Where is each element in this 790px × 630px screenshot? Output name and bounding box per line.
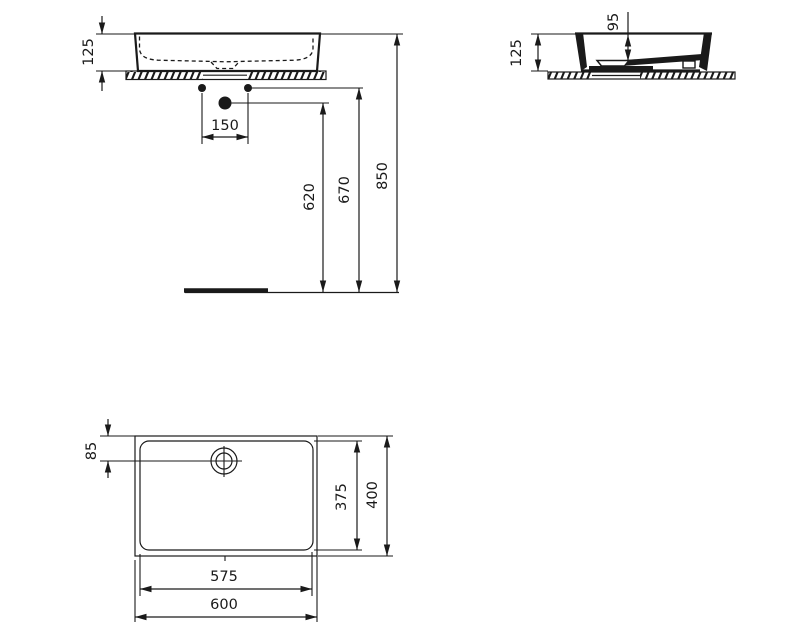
dim-label-side-125: 125 [509,39,525,67]
basin-front-inner-bowl-dashed [140,37,314,62]
dim-label-670: 670 [337,176,353,204]
dim-label-95: 95 [606,13,622,31]
overflow-notch [683,61,695,68]
side-view: 95 125 [509,12,735,79]
tap-hole-left-dot [198,84,206,92]
dim-label-575: 575 [210,569,238,585]
dim-label-620: 620 [302,183,318,211]
basin-front-outline [135,34,320,72]
dim-label-600: 600 [210,597,238,613]
dim-label-85: 85 [84,442,100,460]
basin-front-drain-dashed [211,62,239,69]
dim-label-400: 400 [365,481,381,509]
front-view: 125 150 620 670 850 [81,16,403,293]
dim-label-375: 375 [334,483,350,511]
counter-side-hatch-left [549,73,593,79]
dim-label-front-125: 125 [81,38,97,66]
dim-label-850: 850 [375,162,391,190]
counter-front-hatch-left [127,72,204,80]
washbasin-dimension-drawing: 125 150 620 670 850 [0,0,790,630]
technical-drawing-page: 125 150 620 670 850 [0,0,790,630]
basin-side-right-wall [699,33,712,72]
counter-side-hatch-right [640,73,735,79]
basin-side-left-wall [575,33,587,72]
dim-label-150: 150 [211,118,239,134]
basin-top-inner-rect [140,441,313,550]
basin-top-outer-rect [135,436,317,556]
top-view: 85 375 400 575 600 [84,419,393,622]
counter-front-hatch-right [247,72,326,80]
drain-cap [597,61,629,67]
